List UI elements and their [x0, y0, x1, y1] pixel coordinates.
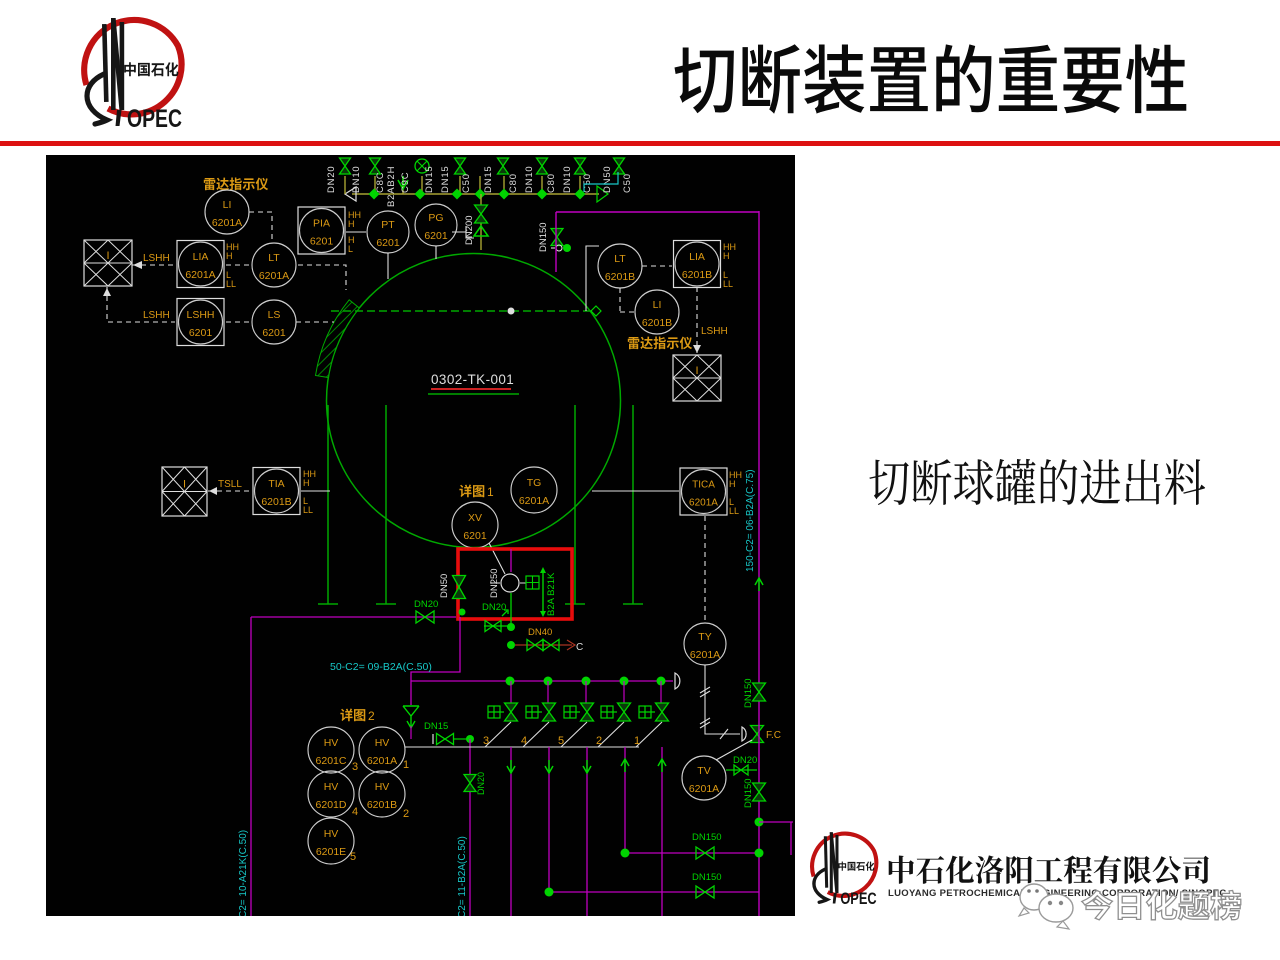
svg-text:I: I	[106, 250, 109, 262]
svg-text:OPEC: OPEC	[840, 890, 876, 908]
svg-text:TV: TV	[697, 765, 710, 777]
svg-text:6201B: 6201B	[367, 799, 397, 811]
svg-text:PT: PT	[381, 219, 395, 231]
svg-text:I: I	[183, 479, 186, 491]
svg-text:3: 3	[483, 735, 489, 747]
svg-text:150-C2= 06-B2A(C.75): 150-C2= 06-B2A(C.75)	[745, 469, 756, 572]
svg-text:50-C2= 09-B2A(C.50): 50-C2= 09-B2A(C.50)	[330, 661, 432, 673]
svg-text:DN150: DN150	[692, 832, 722, 843]
svg-text:C8C: C8C	[375, 172, 386, 193]
svg-text:C80: C80	[508, 173, 519, 193]
svg-text:TY: TY	[698, 631, 711, 643]
svg-text:6201A: 6201A	[690, 649, 720, 661]
svg-text:6201B: 6201B	[261, 496, 291, 508]
svg-text:DN250: DN250	[489, 568, 500, 598]
svg-text:DN10: DN10	[524, 166, 535, 194]
svg-text:6201: 6201	[262, 327, 286, 339]
svg-text:C50: C50	[461, 173, 472, 193]
svg-text:LI: LI	[653, 299, 662, 311]
svg-text:0302-TK-001: 0302-TK-001	[431, 372, 514, 387]
svg-text:DN10: DN10	[562, 166, 573, 194]
svg-text:1: 1	[403, 759, 409, 771]
svg-text:LL: LL	[729, 506, 739, 516]
svg-text:LT: LT	[268, 252, 280, 264]
svg-text:LL: LL	[303, 505, 313, 515]
svg-text:DN15: DN15	[424, 721, 448, 732]
svg-text:DN20: DN20	[733, 755, 757, 766]
svg-text:TG: TG	[527, 477, 542, 489]
svg-text:C2= 11-B2A(C.50): C2= 11-B2A(C.50)	[457, 836, 468, 916]
svg-text:2: 2	[403, 808, 409, 820]
svg-text:6201: 6201	[310, 236, 334, 248]
svg-text:DN20: DN20	[414, 599, 438, 610]
svg-text:TSLL: TSLL	[218, 479, 242, 490]
svg-text:6201: 6201	[463, 530, 487, 542]
svg-text:LIA: LIA	[689, 251, 705, 263]
svg-text:6201A: 6201A	[185, 269, 215, 281]
svg-text:OPEC: OPEC	[127, 105, 182, 133]
svg-text:LIA: LIA	[193, 251, 209, 263]
svg-text:LSHH: LSHH	[701, 326, 728, 337]
svg-text:C9C: C9C	[400, 172, 411, 193]
svg-text:PG: PG	[428, 212, 443, 224]
svg-text:PIA: PIA	[313, 218, 330, 230]
svg-text:DN20: DN20	[326, 166, 337, 194]
svg-text:6201A: 6201A	[689, 498, 718, 509]
svg-text:LI: LI	[223, 199, 232, 211]
svg-text:DN20: DN20	[482, 602, 506, 613]
svg-text:3: 3	[352, 761, 358, 773]
svg-text:4: 4	[521, 735, 527, 747]
svg-text:DN15: DN15	[424, 166, 435, 194]
svg-text:6201C: 6201C	[316, 755, 347, 767]
svg-text:6201B: 6201B	[682, 269, 712, 281]
svg-text:LS: LS	[268, 309, 281, 321]
svg-text:6201B: 6201B	[605, 271, 635, 283]
svg-text:TICA: TICA	[692, 480, 715, 491]
svg-text:4: 4	[352, 806, 358, 818]
svg-text:DN15: DN15	[440, 166, 451, 194]
svg-text:6201: 6201	[376, 237, 400, 249]
svg-text:TIA: TIA	[268, 478, 284, 490]
svg-text:6201A: 6201A	[212, 217, 242, 229]
svg-text:HV: HV	[375, 737, 390, 749]
svg-text:6201: 6201	[189, 327, 213, 339]
svg-text:6201A: 6201A	[259, 270, 289, 282]
svg-text:L: L	[348, 244, 353, 254]
svg-text:DN15: DN15	[483, 166, 494, 194]
svg-text:6201A: 6201A	[519, 495, 549, 507]
svg-text:F.C: F.C	[766, 730, 781, 741]
svg-text:6201A: 6201A	[367, 755, 397, 767]
svg-text:LL: LL	[723, 279, 733, 289]
svg-text:DN150: DN150	[692, 872, 722, 883]
svg-text:1: 1	[634, 735, 640, 747]
svg-text:DN50: DN50	[602, 166, 613, 194]
svg-text:HV: HV	[324, 737, 339, 749]
svg-text:2: 2	[368, 709, 375, 723]
svg-text:B2A B21K: B2A B21K	[546, 572, 557, 616]
svg-text:LSHH: LSHH	[143, 310, 170, 321]
svg-text:DN40: DN40	[528, 627, 552, 638]
svg-text:B2AB2H: B2AB2H	[386, 166, 397, 207]
svg-text:DN50: DN50	[439, 574, 450, 598]
svg-text:DN20: DN20	[476, 772, 486, 795]
svg-text:LSHH: LSHH	[143, 253, 170, 264]
svg-text:H: H	[729, 479, 736, 489]
svg-text:6201D: 6201D	[316, 799, 347, 811]
svg-text:C50: C50	[622, 173, 633, 193]
svg-text:XV: XV	[468, 512, 482, 524]
svg-text:6201B: 6201B	[642, 317, 672, 329]
svg-text:H: H	[226, 251, 233, 261]
svg-text:C80: C80	[546, 173, 557, 193]
svg-text:LSHH: LSHH	[186, 309, 214, 321]
svg-text:LL: LL	[226, 279, 236, 289]
svg-text:HV: HV	[324, 828, 339, 840]
svg-text:HV: HV	[375, 781, 390, 793]
svg-text:I: I	[695, 365, 698, 377]
svg-text:2: 2	[596, 735, 602, 747]
svg-text:1: 1	[487, 485, 494, 499]
svg-text:6201A: 6201A	[689, 783, 719, 795]
svg-text:6201: 6201	[424, 230, 448, 242]
svg-text:C: C	[576, 642, 583, 653]
svg-text:C2= 10-A21K(C.50): C2= 10-A21K(C.50)	[238, 830, 249, 916]
svg-text:DN150: DN150	[538, 222, 549, 252]
svg-text:H: H	[303, 478, 310, 488]
svg-text:DN10: DN10	[351, 166, 362, 194]
svg-text:H: H	[723, 251, 730, 261]
svg-text:6201E: 6201E	[316, 846, 346, 858]
svg-text:LT: LT	[614, 253, 626, 265]
svg-text:5: 5	[558, 735, 564, 747]
svg-text:HV: HV	[324, 781, 339, 793]
svg-text:5: 5	[350, 851, 356, 863]
svg-text:H: H	[348, 219, 355, 229]
